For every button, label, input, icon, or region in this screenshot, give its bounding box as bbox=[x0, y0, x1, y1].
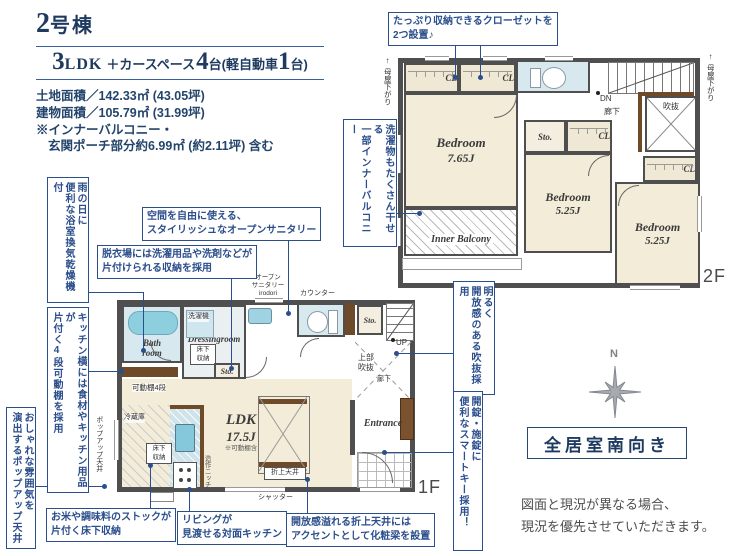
leader-line bbox=[480, 44, 481, 77]
room-size: 5.25J bbox=[645, 235, 670, 247]
eaves-label-left: ↑ 母屋下がり bbox=[381, 50, 394, 111]
underfloor-storage-box-2: 床下 収納 bbox=[146, 443, 172, 464]
leader-dot bbox=[119, 369, 124, 374]
eaves-label-right: ↑ 母屋下がり bbox=[704, 46, 717, 107]
floorplan-sheet: 2号棟 3 LDK ＋カースペース 4 台(軽自動車 1 台) 土地面積／142… bbox=[0, 0, 740, 556]
floor2-closet-3: CL bbox=[566, 120, 612, 153]
coffered-label: 折上天井 bbox=[271, 469, 299, 478]
spec-ldk-count: 3 bbox=[52, 48, 65, 76]
floor2-hallway-label: 廊下 bbox=[604, 107, 620, 117]
leader-line bbox=[307, 479, 308, 513]
washbasin-icon bbox=[248, 308, 272, 324]
south-facing-badge: 全居室南向き bbox=[527, 427, 687, 459]
leader-dot bbox=[453, 75, 458, 80]
floor2-closet-2: CL bbox=[459, 63, 516, 93]
callout-inner-balcony: 洗濯物もたくさん干せる 一部インナーバルコニー bbox=[343, 119, 397, 247]
washer-label: 洗濯機 bbox=[188, 313, 209, 322]
entrance-opening bbox=[360, 487, 400, 492]
window bbox=[255, 298, 283, 303]
callout-rice-storage: お米や調味料のストックが 片付く床下収納 bbox=[46, 508, 176, 542]
toilet-tank-icon bbox=[328, 310, 338, 334]
inner-balcony-label: Inner Balcony bbox=[429, 234, 493, 245]
window bbox=[225, 487, 285, 492]
floor1-storage-1: Sto. bbox=[214, 363, 240, 379]
leader-line bbox=[396, 353, 453, 354]
toilet-bowl-icon bbox=[307, 311, 328, 333]
stove-burners bbox=[179, 468, 183, 472]
floor2-stairs bbox=[608, 62, 694, 94]
leader-line bbox=[455, 44, 456, 77]
balcony-parapet bbox=[402, 258, 522, 270]
stairs-up-label: UP bbox=[396, 338, 407, 348]
popup-ceiling-label: ポップアップ天井 bbox=[94, 416, 103, 476]
building-suffix: 号棟 bbox=[50, 15, 94, 37]
leader-line bbox=[150, 465, 151, 508]
floor2-toilet-room bbox=[516, 60, 590, 93]
window bbox=[114, 420, 119, 460]
spec-carspace: ＋カースペース bbox=[106, 54, 195, 73]
leader-dot bbox=[148, 463, 153, 468]
leader-dot bbox=[417, 211, 422, 216]
spec-ldk: LDK bbox=[65, 56, 103, 74]
spec-kei-count: 1 bbox=[278, 48, 291, 76]
exterior-step bbox=[150, 492, 174, 502]
note-line2: 玄関ポーチ部分約6.99㎡ (約2.11坪) 含む bbox=[48, 135, 274, 154]
floor2-storage: Sto. bbox=[524, 120, 566, 153]
callout-open-sanitary: 空間を自由に使える、 スタイリッシュなオープンサニタリー bbox=[142, 207, 321, 241]
compass-north-label: N bbox=[610, 348, 618, 362]
callout-void: 明るく 開放感のある吹抜採用 bbox=[453, 281, 495, 395]
leader-dot bbox=[102, 484, 107, 489]
floor1-stairs bbox=[386, 303, 414, 341]
shelf-label: 可動棚4段 bbox=[132, 383, 166, 392]
leader-dot bbox=[187, 487, 192, 492]
void-label: 吹抜 bbox=[662, 102, 680, 112]
leader-dot bbox=[394, 351, 399, 356]
storage-label: Sto. bbox=[538, 132, 552, 142]
leader-dot bbox=[382, 450, 387, 455]
callout-laundry-storage: 脱衣場には洗濯用品や洗剤などが 片付けられる収納を採用 bbox=[97, 245, 257, 279]
spec-car-count: 4 bbox=[196, 48, 209, 76]
callout-bath-dryer: 雨の日に 便利な浴室換気乾燥機付 bbox=[47, 177, 89, 303]
room-name: Bedroom bbox=[635, 220, 680, 235]
hanger-rail bbox=[647, 164, 693, 170]
spec-kei: 台(軽自動車 bbox=[209, 54, 278, 73]
building-number: 2 bbox=[36, 8, 50, 39]
callout-kitchen-shelf: キッチン横には食材やキッチン用品が 片付く4段可動棚を採用 bbox=[47, 307, 89, 493]
underfloor-label: 床下 収納 bbox=[197, 346, 210, 362]
divider bbox=[36, 79, 324, 80]
room-size: 5.25J bbox=[556, 205, 581, 217]
bathtub-icon bbox=[128, 311, 178, 335]
floor1-dressing-room: 洗濯機 Dressingroom 床下 収納 Sto. bbox=[182, 305, 246, 379]
window bbox=[697, 196, 702, 232]
spec-tail: 台) bbox=[290, 54, 307, 73]
shutter-label: シャッター bbox=[258, 494, 293, 503]
leader-dot bbox=[478, 75, 483, 80]
stair-railing bbox=[638, 92, 694, 96]
toilet-tank-icon bbox=[530, 68, 541, 88]
floor2-void: 吹抜 bbox=[645, 96, 697, 152]
room-name: Bedroom bbox=[436, 135, 485, 151]
leader-dot bbox=[141, 348, 146, 353]
eaves-text: 母屋下がり bbox=[706, 64, 715, 102]
leader-line bbox=[143, 292, 144, 350]
floor1-label: 1F bbox=[418, 477, 441, 498]
coffered-label-box: 折上天井 bbox=[264, 467, 306, 480]
window bbox=[425, 56, 449, 61]
kitchen-sink-icon bbox=[175, 424, 195, 452]
stairs-down-label: DN bbox=[600, 94, 612, 104]
storage-label: Sto. bbox=[364, 316, 377, 325]
stove-icon bbox=[173, 462, 197, 489]
floor2-label: 2F bbox=[703, 266, 726, 287]
toilet-bowl-icon bbox=[542, 67, 566, 89]
leader-line bbox=[189, 489, 190, 511]
ldk-size: 17.5J bbox=[208, 429, 274, 445]
floor2-closet-1: CL bbox=[404, 63, 459, 93]
page-title: 2号棟 bbox=[36, 8, 94, 40]
callout-ceiling-beam: 開放感溢れる折上天井には アクセントとして化粧梁を設置 bbox=[286, 513, 435, 547]
up-arrow: ↑ bbox=[709, 52, 713, 61]
up-arrow: ↑ bbox=[386, 56, 390, 65]
floor1-toilet-room bbox=[297, 303, 345, 337]
leader-dot bbox=[305, 477, 310, 482]
disclaimer-text: 図面と現況が異なる場合、 現況を優先させていただきます。 bbox=[521, 494, 715, 538]
stair-railing bbox=[638, 92, 642, 152]
floor1-bathroom: Bath room bbox=[122, 305, 182, 363]
underfloor-label: 床下 収納 bbox=[153, 445, 166, 461]
up-marker-dot bbox=[391, 338, 395, 342]
niche-label: 造作ニッチ bbox=[202, 455, 210, 493]
leader-dot bbox=[286, 311, 291, 316]
leader-line bbox=[231, 273, 232, 368]
fridge-label: 冷蔵庫 bbox=[124, 414, 145, 423]
hanger-rail bbox=[408, 71, 455, 77]
floor1-hallway-label: 廊下 bbox=[377, 376, 391, 385]
leader-line bbox=[288, 235, 289, 313]
ldk-name: LDK bbox=[208, 412, 274, 429]
compass-rose-icon bbox=[585, 362, 645, 422]
floor2-closet-4: CL bbox=[643, 156, 697, 182]
callout-closet: たっぷり収納できるクローゼットを 2つ設置♪ bbox=[388, 12, 558, 46]
ldk-note: ※可動棚含 bbox=[208, 445, 274, 453]
underfloor-storage-box: 床下 収納 bbox=[190, 344, 216, 365]
dn-marker-dot bbox=[596, 91, 600, 95]
leader-dot bbox=[229, 366, 234, 371]
callout-popup-ceiling: おしゃれな雰囲気を 演出するポップアップ天井 bbox=[6, 407, 36, 549]
window bbox=[545, 56, 573, 61]
leader-line bbox=[384, 452, 453, 453]
upper-void-label: 上部 吹抜 bbox=[358, 353, 374, 373]
callout-smart-key: 開錠・施錠に 便利なスマートキー採用！ bbox=[453, 391, 483, 551]
window bbox=[483, 56, 507, 61]
divider bbox=[36, 46, 324, 47]
room-name: Bedroom bbox=[545, 190, 590, 205]
movable-shelf bbox=[122, 367, 178, 377]
room-size: 7.65J bbox=[448, 151, 475, 166]
counter-top bbox=[345, 303, 355, 335]
floor1-storage-2: Sto. bbox=[357, 305, 383, 335]
eaves-text: 母屋下がり bbox=[383, 68, 392, 106]
callout-counter-kitchen: リビングが 見渡せる対面キッチン bbox=[177, 511, 287, 545]
entrance-label: Entrance bbox=[355, 418, 411, 429]
hanger-rail bbox=[463, 71, 512, 77]
ldk-label-block: LDK 17.5J ※可動棚含 bbox=[208, 412, 274, 453]
window bbox=[630, 285, 680, 290]
layout-spec: 3 LDK ＋カースペース 4 台(軽自動車 1 台) bbox=[36, 48, 324, 76]
hanger-rail bbox=[570, 128, 608, 134]
counter-label: カウンター bbox=[300, 290, 335, 299]
